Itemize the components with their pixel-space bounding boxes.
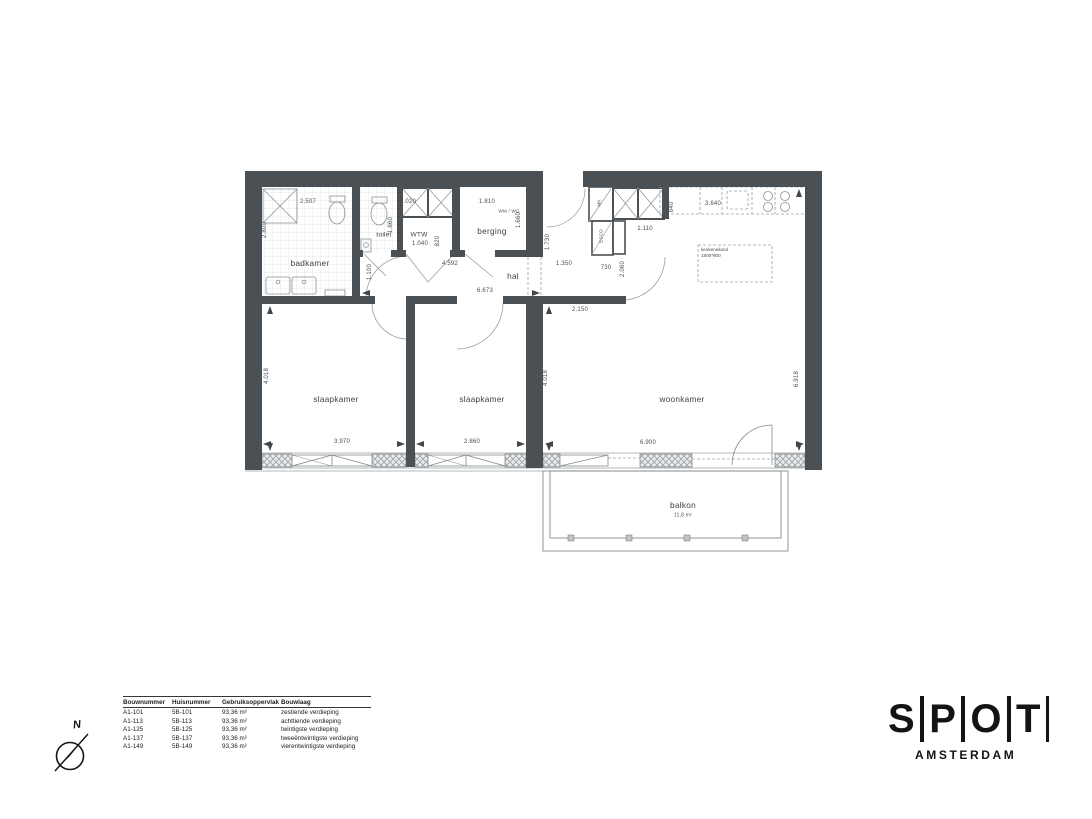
logo-divider-bar — [1007, 696, 1011, 742]
wall-top-left — [245, 171, 543, 187]
table-cell: vierentwintigste verdieping — [281, 742, 371, 750]
wall-kitchen-side — [662, 187, 669, 219]
table-row: A1-149 5B-149 93,36 m² vierentwintigste … — [123, 742, 371, 750]
bedroom2-door-arc — [457, 303, 503, 349]
room-label-toilet: toilet — [376, 233, 391, 240]
room-label-slaapkamer-2: slaapkamer — [459, 396, 504, 404]
dim-keuken-l: 3.640 — [705, 201, 721, 207]
table-cell: tweeëntwintigste verdieping — [281, 733, 371, 741]
logo-subtitle: AMSTERDAM — [915, 748, 1055, 762]
table-header-cell: Huisnummer — [172, 697, 222, 708]
wall-hall-bottom-3 — [503, 296, 543, 304]
kitchen-counter — [660, 187, 806, 282]
table-cell: 93,36 m² — [222, 708, 281, 717]
legend-header: Bouwnummer Huisnummer Gebruiksoppervlak … — [123, 697, 371, 708]
dim-berging-h: 1.660 — [516, 212, 522, 228]
compass-north-label: N — [72, 719, 82, 732]
table-cell: A1-149 — [123, 742, 172, 750]
label-esco: ESCO — [600, 229, 605, 243]
table-cell: 93,36 m² — [222, 716, 281, 724]
table-row: A1-137 5B-137 93,36 m² tweeëntwintigste … — [123, 733, 371, 741]
table-cell: A1-125 — [123, 725, 172, 733]
wall-wtw-right — [452, 187, 460, 252]
wall-badkamer-right — [352, 187, 360, 296]
balkon-area: 11,8 m² — [674, 514, 692, 519]
wall-bedroom-divider — [406, 304, 415, 453]
kitchen-island-note: keukeneiland 1800*900 — [701, 247, 771, 258]
dim-entree-w: 1.350 — [556, 261, 572, 267]
room-label-wtw: WTW — [410, 233, 427, 240]
storage-door-leaf — [465, 254, 493, 277]
table-cell: A1-113 — [123, 716, 172, 724]
wall-hall-bottom-1 — [262, 296, 375, 304]
logo-letter: S — [888, 699, 915, 739]
logo-letter: O — [970, 699, 1001, 739]
table-cell: A1-101 — [123, 708, 172, 717]
table-cell: twintigste verdieping — [281, 725, 371, 733]
table-row: A1-101 5B-101 93,36 m² zestiende verdiep… — [123, 708, 371, 717]
logo-letter: T — [1016, 699, 1040, 739]
dim-woonkamer-d: 4.018 — [543, 370, 549, 386]
dim-badkamer-deur: 1.100 — [367, 264, 373, 280]
open-passage — [528, 257, 541, 296]
table-cell: 93,36 m² — [222, 733, 281, 741]
table-cell: 93,36 m² — [222, 742, 281, 750]
table-cell: 5B-149 — [172, 742, 222, 750]
kitchen-sink — [727, 191, 748, 209]
room-label-berging: berging — [477, 228, 506, 236]
balcony-outline — [543, 471, 788, 551]
table-cell: 5B-101 — [172, 708, 222, 717]
dim-entree-d: 1.730 — [545, 234, 551, 250]
table-cell: A1-137 — [123, 733, 172, 741]
room-label-badkamer: badkamer — [291, 260, 330, 268]
hall-livingroom-door-arc — [622, 257, 665, 300]
dim-badkamer-w: 2.507 — [300, 199, 316, 205]
table-cell: 93,36 m² — [222, 725, 281, 733]
dim-deur-h: 2.060 — [620, 261, 626, 277]
table-header-cell: Gebruiksoppervlak — [222, 697, 281, 708]
small-shaft — [613, 221, 625, 254]
bedroom1-door-arc — [372, 303, 408, 339]
dim-entree-l: 2.150 — [572, 307, 588, 313]
dim-kast-w: 730 — [601, 265, 612, 271]
wall-right — [805, 171, 822, 470]
room-label-balkon: balkon — [670, 502, 696, 510]
logo-divider-bar — [920, 696, 924, 742]
logo-letter: P — [929, 699, 956, 739]
dim-woonkamer-w: 6.900 — [640, 440, 656, 446]
room-label-hal: hal — [507, 273, 519, 281]
room-label-slaapkamer-1: slaapkamer — [313, 396, 358, 404]
logo-divider-bar — [1046, 696, 1050, 742]
dim-hal-l2: 6.673 — [477, 288, 493, 294]
table-cell: achttiende verdieping — [281, 716, 371, 724]
mk-esco-closets — [589, 187, 625, 255]
wtw-door-leaves — [406, 254, 454, 282]
table-cell: 5B-137 — [172, 733, 222, 741]
dim-toilet-w: 1.020 — [400, 199, 416, 205]
spot-amsterdam-logo: S P O T AMSTERDAM — [888, 694, 1055, 762]
wall-toilet-right — [397, 187, 403, 252]
dim-slaapkamer-d: 4.018 — [264, 368, 270, 384]
wall-left — [245, 171, 262, 470]
dim-aanrecht-d: 840 — [669, 202, 675, 213]
wall-hall-bottom-2 — [406, 296, 457, 304]
dim-badkamer-h: 2.800 — [262, 222, 268, 238]
floorplan-page: badkamer toilet WTW berging hal slaapkam… — [0, 0, 1092, 819]
table-cell: 5B-113 — [172, 716, 222, 724]
table-cell: 5B-125 — [172, 725, 222, 733]
dim-slaapkamer1-w: 3.970 — [334, 439, 350, 445]
dim-toilet-h: 1.660 — [388, 217, 394, 233]
label-mk: MK — [598, 199, 603, 206]
wall-top-right — [583, 171, 822, 187]
logo-letters-row: S P O T — [888, 694, 1055, 744]
table-cell: zestiende verdieping — [281, 708, 371, 717]
wall-entry-bottom — [543, 296, 618, 304]
dim-wtw-w: 1.040 — [412, 241, 428, 247]
wall-core-upper — [526, 171, 543, 257]
compass: N — [40, 713, 104, 781]
room-label-woonkamer: woonkamer — [659, 396, 704, 404]
table-header-cell: Bouwnummer — [123, 697, 172, 708]
table-header-cell: Bouwlaag — [281, 697, 371, 708]
table-row: A1-125 5B-125 93,36 m² twintigste verdie… — [123, 725, 371, 733]
dim-kast-l: 1.110 — [637, 226, 653, 232]
logo-divider-bar — [961, 696, 965, 742]
kitchen-island-line2: 1800*900 — [701, 253, 771, 259]
dim-berging-w: 1.810 — [479, 199, 495, 205]
dim-slaapkamer2-w: 2.860 — [464, 439, 480, 445]
dim-woonkamer-h: 6.918 — [794, 371, 800, 387]
entrance-door-arc — [547, 189, 585, 227]
hob-icon — [764, 192, 790, 212]
dim-wtw-d: 820 — [435, 236, 441, 247]
dim-hal-l1: 4.592 — [442, 261, 458, 267]
unit-legend-table: Bouwnummer Huisnummer Gebruiksoppervlak … — [123, 696, 371, 750]
table-row: A1-113 5B-113 93,36 m² achttiende verdie… — [123, 716, 371, 724]
wall-bedroom2-living — [526, 296, 543, 468]
